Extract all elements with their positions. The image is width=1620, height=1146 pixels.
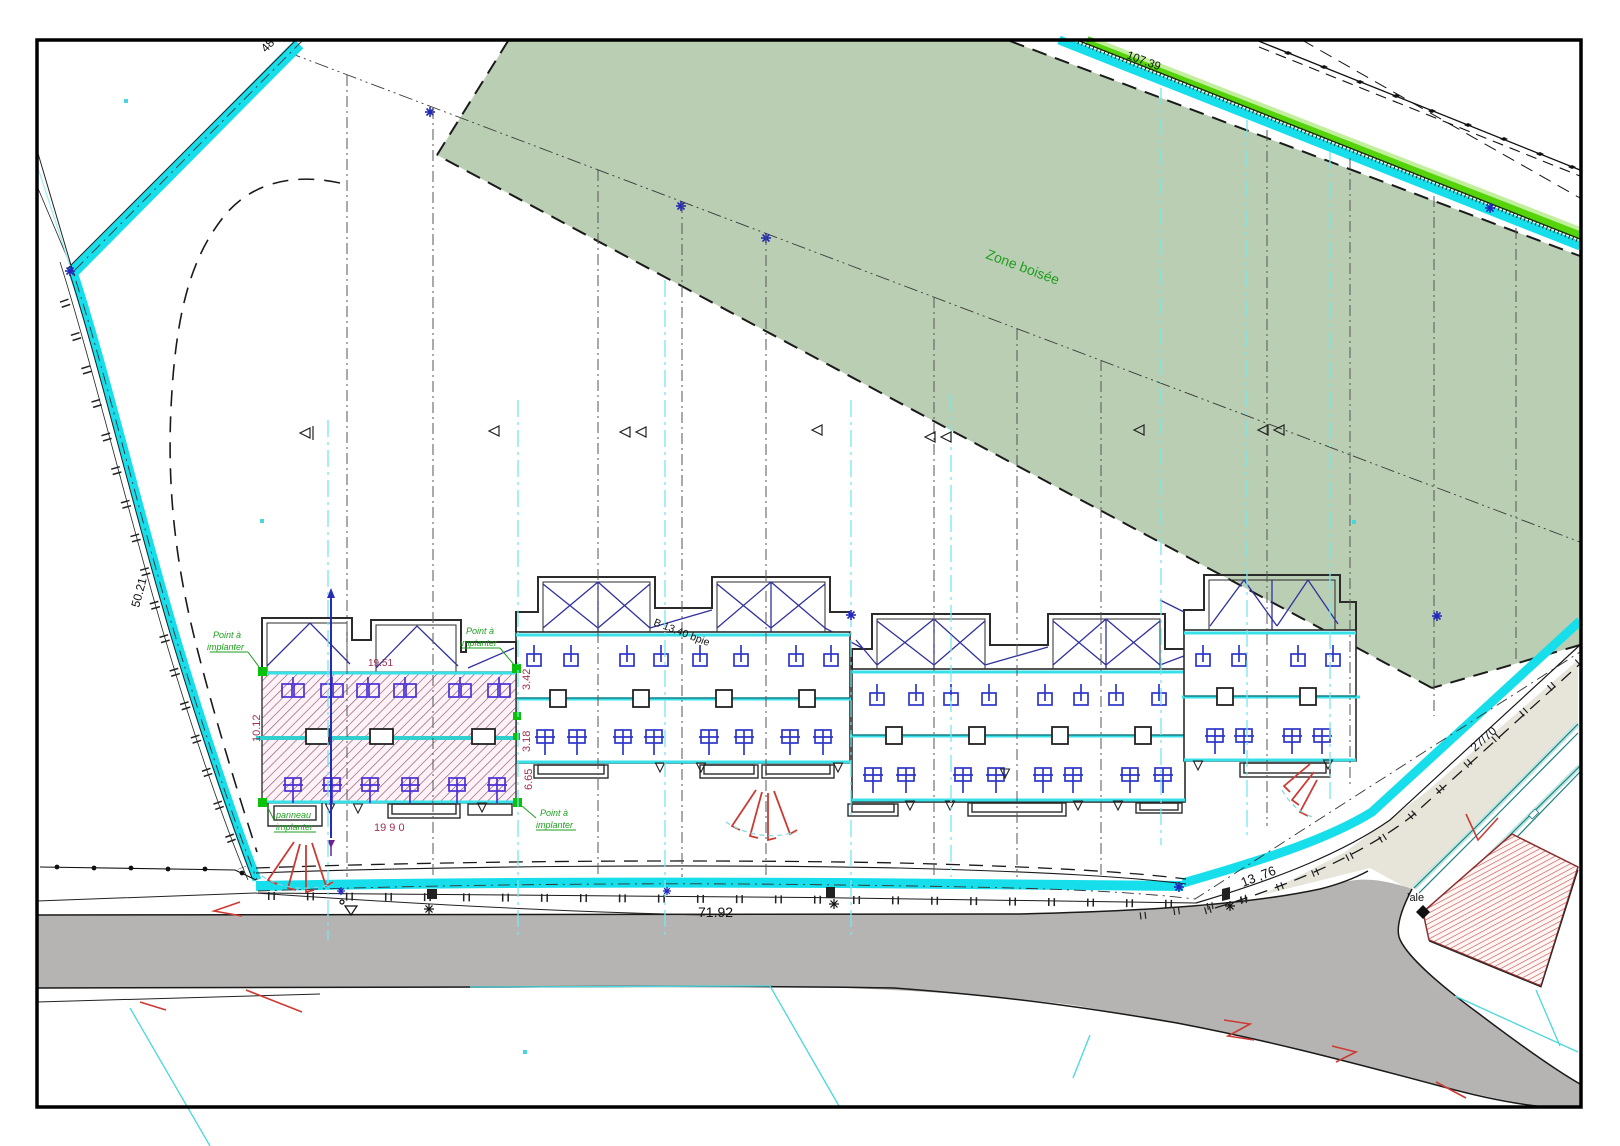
svg-text:6.65: 6.65	[523, 769, 535, 790]
svg-text:Point à: Point à	[466, 626, 494, 636]
svg-text:71.92: 71.92	[698, 904, 733, 920]
svg-text:19 9 0: 19 9 0	[374, 822, 405, 834]
svg-text:implanter: implanter	[276, 822, 314, 832]
svg-text:19.51: 19.51	[368, 658, 393, 669]
svg-text:panneau: panneau	[275, 810, 311, 820]
svg-text:Point à: Point à	[213, 630, 241, 640]
svg-text:implanter: implanter	[207, 642, 245, 652]
svg-text:3.42: 3.42	[521, 669, 533, 690]
svg-text:3.18: 3.18	[521, 731, 533, 752]
svg-text:implanter: implanter	[536, 820, 574, 830]
svg-text:10.12: 10.12	[251, 714, 263, 742]
svg-text:ʼale: ʼale	[1407, 892, 1424, 904]
svg-text:Point à: Point à	[540, 808, 568, 818]
svg-text:implanter: implanter	[460, 638, 498, 648]
